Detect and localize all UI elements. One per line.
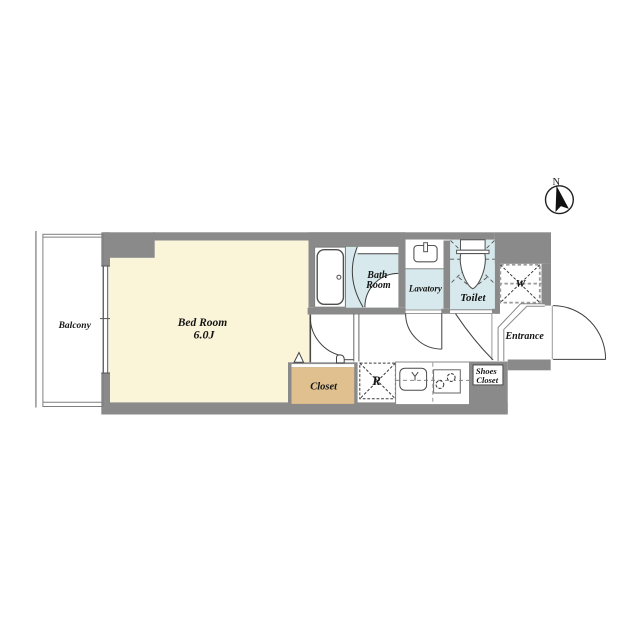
svg-text:Balcony: Balcony (58, 321, 92, 331)
svg-text:Room: Room (365, 280, 391, 291)
svg-text:R: R (371, 374, 380, 388)
svg-text:Entrance: Entrance (505, 331, 545, 342)
svg-text:Lavatory: Lavatory (408, 283, 443, 293)
svg-text:Closet: Closet (476, 375, 498, 385)
svg-text:W: W (516, 278, 527, 290)
svg-text:N: N (553, 177, 561, 188)
svg-text:6.0J: 6.0J (194, 327, 216, 341)
svg-text:Toilet: Toilet (460, 292, 486, 304)
svg-text:Closet: Closet (310, 382, 338, 393)
